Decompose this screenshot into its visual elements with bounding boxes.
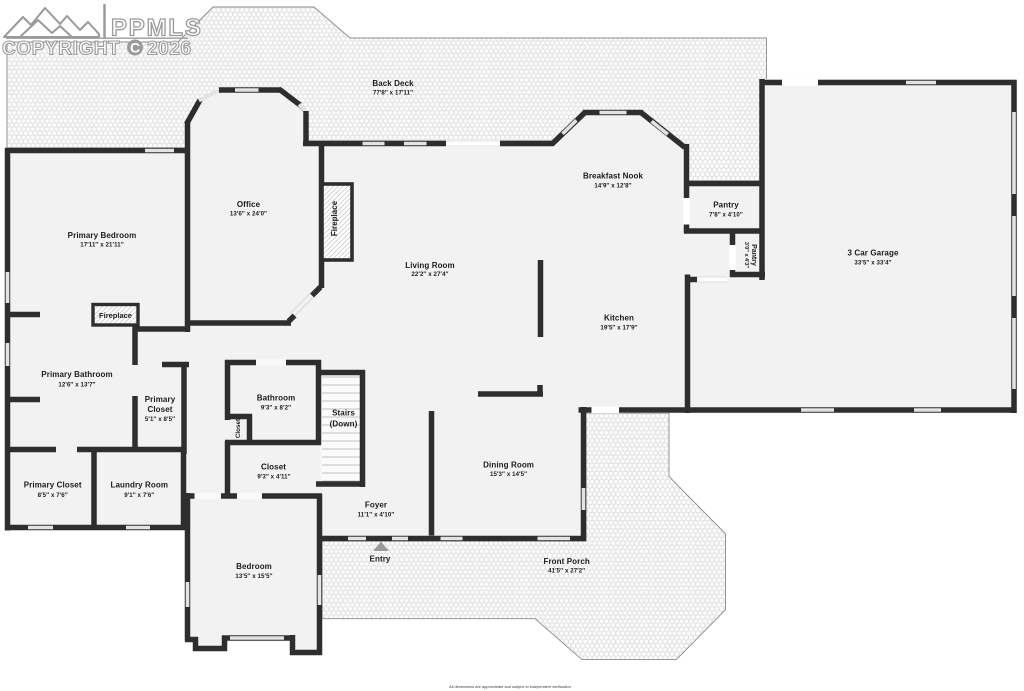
svg-text:11′1″ x 4′10″: 11′1″ x 4′10″ xyxy=(358,512,395,519)
svg-text:Closet: Closet xyxy=(235,418,242,438)
svg-text:5′1″ x 8′5″: 5′1″ x 8′5″ xyxy=(145,416,175,423)
svg-text:3′0″ x 4′3″: 3′0″ x 4′3″ xyxy=(743,242,749,269)
svg-text:Entry: Entry xyxy=(370,555,391,564)
svg-text:(Down): (Down) xyxy=(330,420,358,429)
svg-text:Bedroom: Bedroom xyxy=(236,562,272,571)
svg-text:12′6″ x 13′7″: 12′6″ x 13′7″ xyxy=(58,382,95,389)
svg-text:14′9″ x 12′8″: 14′9″ x 12′8″ xyxy=(594,183,631,190)
svg-text:9′1″ x 7′6″: 9′1″ x 7′6″ xyxy=(124,492,154,499)
svg-text:Primary Bathroom: Primary Bathroom xyxy=(41,370,112,379)
svg-text:Closet: Closet xyxy=(147,405,172,414)
svg-text:3 Car Garage: 3 Car Garage xyxy=(847,249,898,258)
svg-text:Primary Bedroom: Primary Bedroom xyxy=(68,231,137,240)
svg-text:22′2″ x 27′4″: 22′2″ x 27′4″ xyxy=(411,271,448,278)
svg-text:PPMLS: PPMLS xyxy=(111,15,203,42)
svg-text:Breakfast Nook: Breakfast Nook xyxy=(583,172,644,181)
svg-text:19′5″ x 17′9″: 19′5″ x 17′9″ xyxy=(600,325,637,332)
svg-text:Stairs: Stairs xyxy=(332,409,355,418)
svg-text:C: C xyxy=(130,40,140,56)
svg-text:Pantry: Pantry xyxy=(713,201,739,210)
svg-text:Living Room: Living Room xyxy=(405,261,455,270)
svg-text:Primary Closet: Primary Closet xyxy=(24,481,82,490)
svg-text:Pantry: Pantry xyxy=(750,244,757,266)
svg-text:13′5″ x 15′5″: 13′5″ x 15′5″ xyxy=(235,573,272,580)
svg-text:Bathroom: Bathroom xyxy=(257,394,296,403)
svg-text:Front Porch: Front Porch xyxy=(543,557,589,566)
svg-text:2026: 2026 xyxy=(147,39,192,60)
svg-text:9′3″ x 8′2″: 9′3″ x 8′2″ xyxy=(261,405,291,412)
svg-text:Fireplace: Fireplace xyxy=(330,200,339,236)
svg-text:13′6″ x 24′0″: 13′6″ x 24′0″ xyxy=(230,211,267,218)
svg-text:Office: Office xyxy=(237,200,261,209)
svg-text:COPYRIGHT: COPYRIGHT xyxy=(2,39,120,60)
svg-text:Fireplace: Fireplace xyxy=(99,311,132,320)
svg-text:Primary: Primary xyxy=(145,395,176,404)
svg-text:Back Deck: Back Deck xyxy=(372,79,414,88)
svg-text:Kitchen: Kitchen xyxy=(604,314,634,323)
svg-text:77′8″ x 17′11″: 77′8″ x 17′11″ xyxy=(373,90,413,97)
svg-text:Dining Room: Dining Room xyxy=(483,461,534,470)
svg-text:15′3″ x 14′5″: 15′3″ x 14′5″ xyxy=(490,471,527,478)
svg-text:All dimensions are approximate: All dimensions are approximate and subje… xyxy=(449,684,571,689)
svg-text:9′3″ x 4′11″: 9′3″ x 4′11″ xyxy=(257,474,290,481)
svg-text:7′8″ x 4′10″: 7′8″ x 4′10″ xyxy=(709,212,743,219)
svg-text:33′5″ x 33′4″: 33′5″ x 33′4″ xyxy=(854,260,891,267)
svg-text:41′5″ x 27′2″: 41′5″ x 27′2″ xyxy=(548,568,585,575)
svg-text:17′11″ x 21′11″: 17′11″ x 21′11″ xyxy=(80,242,123,249)
svg-text:8′5″ x 7′6″: 8′5″ x 7′6″ xyxy=(38,492,68,499)
svg-text:Foyer: Foyer xyxy=(365,501,387,510)
svg-text:Closet: Closet xyxy=(261,463,286,472)
svg-text:Laundry Room: Laundry Room xyxy=(110,481,168,490)
